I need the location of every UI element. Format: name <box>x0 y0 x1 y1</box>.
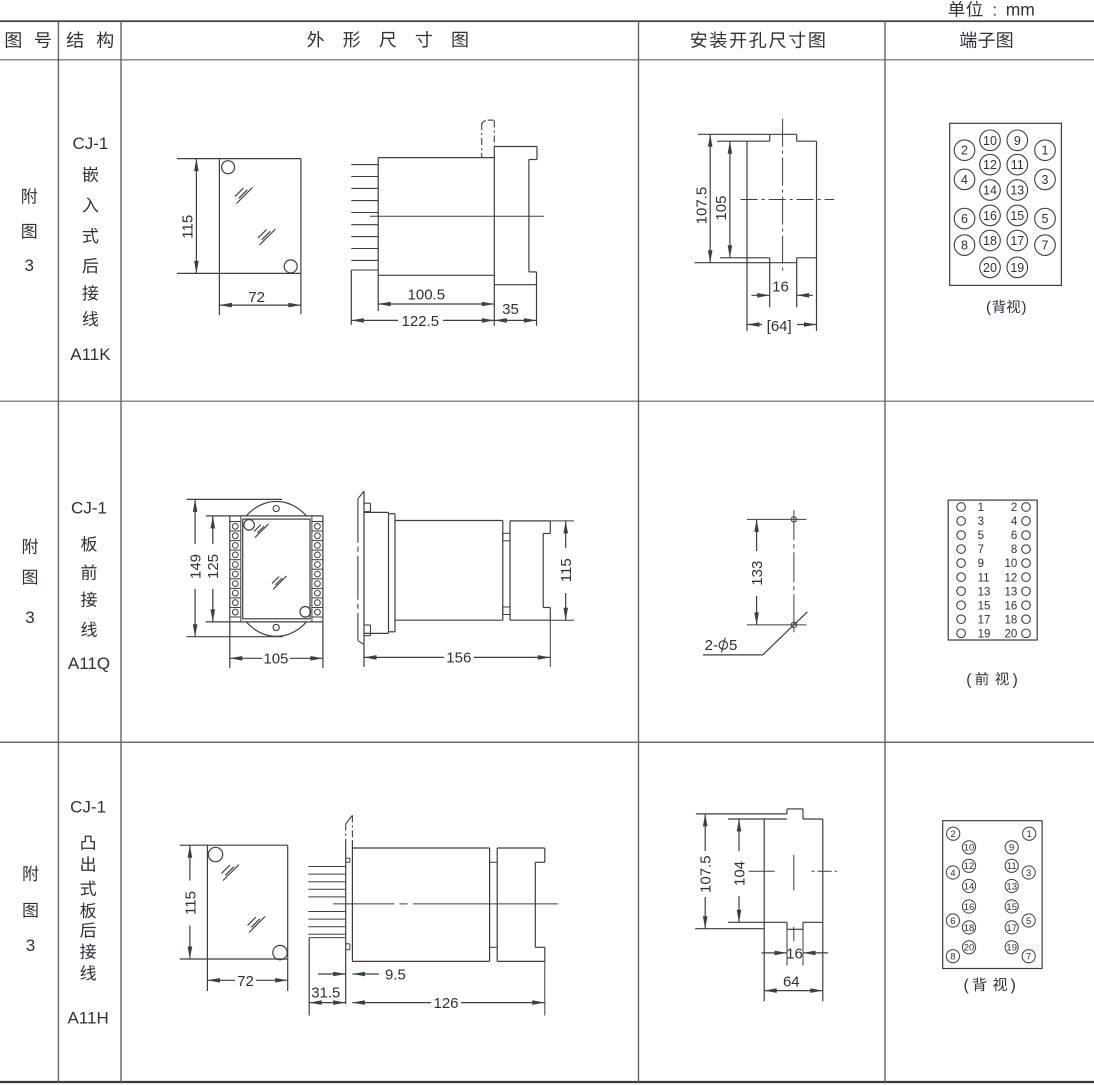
svg-text:9: 9 <box>1014 134 1021 148</box>
svg-text:12: 12 <box>1005 572 1018 584</box>
svg-text:16: 16 <box>983 209 997 223</box>
svg-text:(: ( <box>964 977 970 994</box>
svg-text:14: 14 <box>983 184 997 198</box>
svg-text:19: 19 <box>978 628 991 640</box>
svg-text:1: 1 <box>978 502 984 514</box>
svg-text:3: 3 <box>24 256 33 275</box>
svg-text:149: 149 <box>188 554 205 579</box>
svg-text:13: 13 <box>1005 586 1018 598</box>
svg-text:7: 7 <box>1026 952 1031 963</box>
svg-text:6: 6 <box>950 916 955 927</box>
svg-text:31.5: 31.5 <box>311 984 340 1001</box>
svg-text:115: 115 <box>180 215 197 239</box>
svg-text:115: 115 <box>558 558 575 582</box>
svg-text:12: 12 <box>983 158 997 172</box>
svg-text:5: 5 <box>729 637 737 654</box>
svg-text:3: 3 <box>1042 173 1049 187</box>
svg-text:17: 17 <box>978 614 991 626</box>
svg-text:A11K: A11K <box>70 345 111 364</box>
svg-text:17: 17 <box>1010 234 1024 248</box>
svg-text:A11Q: A11Q <box>68 654 110 673</box>
svg-text:4: 4 <box>950 868 955 879</box>
svg-text:6: 6 <box>1011 530 1017 542</box>
svg-text:105: 105 <box>713 196 730 221</box>
svg-text:2-: 2- <box>705 637 718 654</box>
svg-text:18: 18 <box>1005 614 1018 626</box>
svg-text:16: 16 <box>964 902 975 913</box>
svg-text:1: 1 <box>1042 144 1049 158</box>
svg-text:[64]: [64] <box>767 318 792 335</box>
svg-text:15: 15 <box>978 600 991 612</box>
svg-text:156: 156 <box>446 650 471 667</box>
svg-text:105: 105 <box>263 650 288 667</box>
svg-text:17: 17 <box>1006 923 1017 934</box>
svg-text:18: 18 <box>964 923 975 934</box>
svg-text:2: 2 <box>951 829 956 840</box>
svg-text:CJ-1: CJ-1 <box>71 499 107 518</box>
svg-text:133: 133 <box>749 561 766 586</box>
svg-text:20: 20 <box>964 943 975 954</box>
svg-text:): ) <box>1013 671 1018 688</box>
svg-text:9: 9 <box>978 558 984 570</box>
svg-text:107.5: 107.5 <box>694 187 711 225</box>
svg-text:13: 13 <box>978 586 991 598</box>
svg-text:CJ-1: CJ-1 <box>72 134 108 153</box>
svg-text:8: 8 <box>1011 544 1017 556</box>
svg-text:35: 35 <box>502 301 519 318</box>
svg-text:2: 2 <box>961 144 968 158</box>
svg-text:10: 10 <box>983 134 997 148</box>
svg-text:20: 20 <box>1005 628 1018 640</box>
svg-text:72: 72 <box>248 289 265 306</box>
svg-text:3: 3 <box>26 936 35 955</box>
svg-text:100.5: 100.5 <box>408 287 446 304</box>
svg-text:4: 4 <box>1011 516 1018 528</box>
svg-text:13: 13 <box>1010 184 1024 198</box>
svg-text:5: 5 <box>1026 916 1031 927</box>
svg-text:10: 10 <box>964 843 975 854</box>
svg-text:10: 10 <box>1005 558 1018 570</box>
svg-text:7: 7 <box>978 544 984 556</box>
svg-text:16: 16 <box>772 279 789 296</box>
svg-text:4: 4 <box>961 173 968 187</box>
svg-text:8: 8 <box>961 239 968 253</box>
svg-text:12: 12 <box>964 861 975 872</box>
svg-text:20: 20 <box>983 261 997 275</box>
svg-text:11: 11 <box>1007 861 1017 872</box>
svg-text:8: 8 <box>950 952 955 963</box>
svg-text:64: 64 <box>783 973 800 990</box>
svg-text:115: 115 <box>182 891 199 915</box>
svg-text:122.5: 122.5 <box>402 313 440 330</box>
svg-text:A11H: A11H <box>67 1008 108 1027</box>
svg-text::: : <box>992 0 997 19</box>
svg-text:16: 16 <box>1005 600 1018 612</box>
svg-text:11: 11 <box>1011 158 1024 172</box>
svg-text:CJ-1: CJ-1 <box>70 797 106 816</box>
svg-text:15: 15 <box>1006 902 1017 913</box>
svg-text:13: 13 <box>1006 881 1017 892</box>
svg-text:5: 5 <box>1042 212 1049 226</box>
svg-text:14: 14 <box>964 881 975 892</box>
svg-text:11: 11 <box>978 572 990 584</box>
svg-text:19: 19 <box>1006 943 1017 954</box>
svg-text:3: 3 <box>978 516 984 528</box>
svg-text:104: 104 <box>731 861 748 886</box>
svg-text:): ) <box>1022 299 1027 316</box>
svg-text:9.5: 9.5 <box>385 967 406 984</box>
svg-text:2: 2 <box>1011 502 1017 514</box>
svg-text:18: 18 <box>983 234 997 248</box>
svg-text:3: 3 <box>1026 868 1031 879</box>
svg-text:72: 72 <box>237 973 254 990</box>
svg-text:126: 126 <box>433 995 458 1012</box>
svg-text:5: 5 <box>978 530 984 542</box>
svg-text:3: 3 <box>25 608 34 627</box>
svg-text:15: 15 <box>1010 209 1024 223</box>
svg-text:7: 7 <box>1042 239 1049 253</box>
svg-text:125: 125 <box>205 554 222 579</box>
svg-text:): ) <box>1011 977 1016 994</box>
svg-text:9: 9 <box>1009 843 1014 854</box>
svg-text:107.5: 107.5 <box>698 855 715 893</box>
svg-text:6: 6 <box>961 212 968 226</box>
svg-text:mm: mm <box>1006 0 1035 20</box>
svg-text:1: 1 <box>1027 829 1032 840</box>
svg-text:19: 19 <box>1010 261 1024 275</box>
svg-text:16: 16 <box>786 946 803 963</box>
svg-text:(: ( <box>966 671 972 688</box>
svg-text:(: ( <box>986 299 991 316</box>
